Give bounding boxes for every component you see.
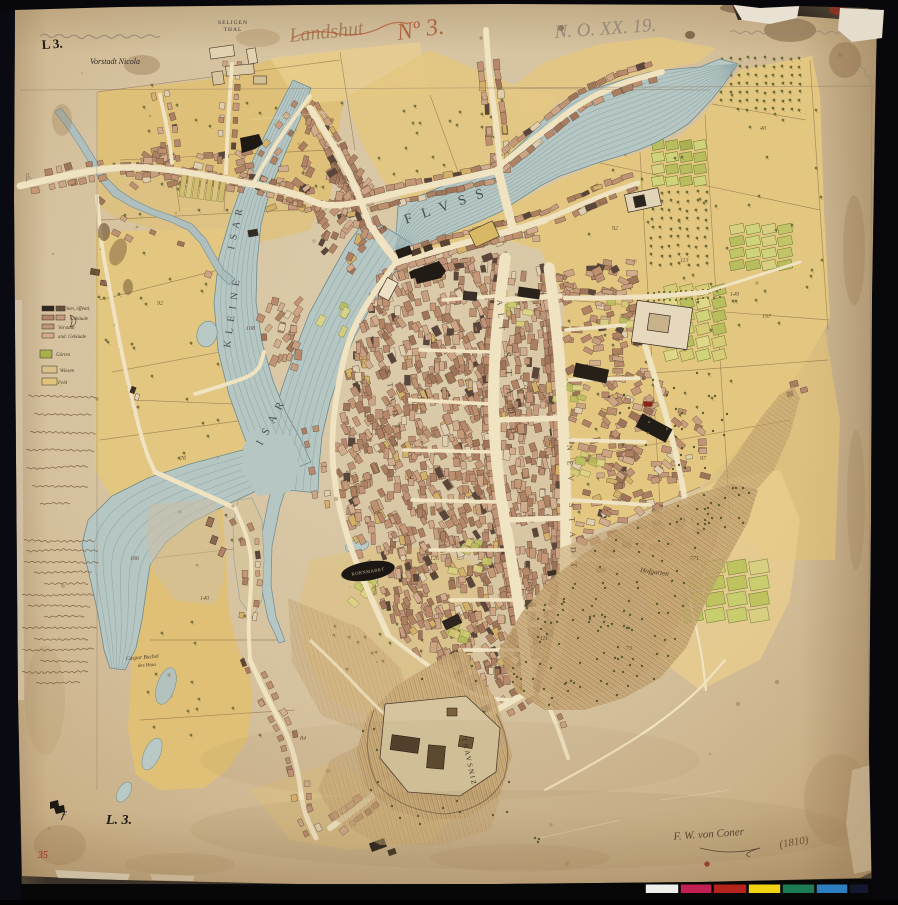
svg-text:166: 166 bbox=[130, 556, 139, 562]
svg-text:Feld: Feld bbox=[57, 381, 68, 386]
svg-text:35: 35 bbox=[37, 850, 48, 861]
svg-text:and. Gebäude: and. Gebäude bbox=[58, 335, 87, 340]
svg-text:73: 73 bbox=[626, 646, 632, 652]
svg-text:771: 771 bbox=[690, 556, 699, 562]
svg-text:84: 84 bbox=[300, 735, 306, 742]
svg-text:111: 111 bbox=[540, 636, 548, 642]
svg-text:Kirchen, öffentl.: Kirchen, öffentl. bbox=[57, 307, 90, 312]
svg-text:Gärten: Gärten bbox=[56, 353, 71, 358]
svg-text:76: 76 bbox=[180, 456, 186, 462]
svg-text:L. 3.: L. 3. bbox=[105, 813, 132, 828]
svg-text:157: 157 bbox=[762, 314, 772, 320]
svg-text:Vorstadt Nicola: Vorstadt Nicola bbox=[90, 57, 140, 66]
svg-text:L 3.: L 3. bbox=[41, 36, 63, 52]
svg-text:113: 113 bbox=[680, 258, 689, 264]
svg-text:Vorstadt: Vorstadt bbox=[58, 326, 75, 331]
svg-text:92: 92 bbox=[157, 301, 163, 307]
svg-text:90: 90 bbox=[640, 376, 646, 382]
svg-text:Wiesen: Wiesen bbox=[60, 369, 75, 374]
svg-text:Gebäude: Gebäude bbox=[70, 317, 89, 322]
svg-text:9: 9 bbox=[383, 226, 386, 232]
svg-text:97: 97 bbox=[700, 456, 707, 462]
svg-text:SELIGEN: SELIGEN bbox=[218, 20, 248, 26]
svg-text:140: 140 bbox=[200, 595, 209, 602]
svg-text:40: 40 bbox=[760, 125, 766, 132]
svg-text:92: 92 bbox=[612, 226, 618, 232]
svg-text:THAL: THAL bbox=[224, 27, 243, 33]
svg-text:108: 108 bbox=[246, 326, 255, 332]
svg-text:149: 149 bbox=[730, 291, 739, 298]
svg-text:126: 126 bbox=[430, 556, 439, 562]
